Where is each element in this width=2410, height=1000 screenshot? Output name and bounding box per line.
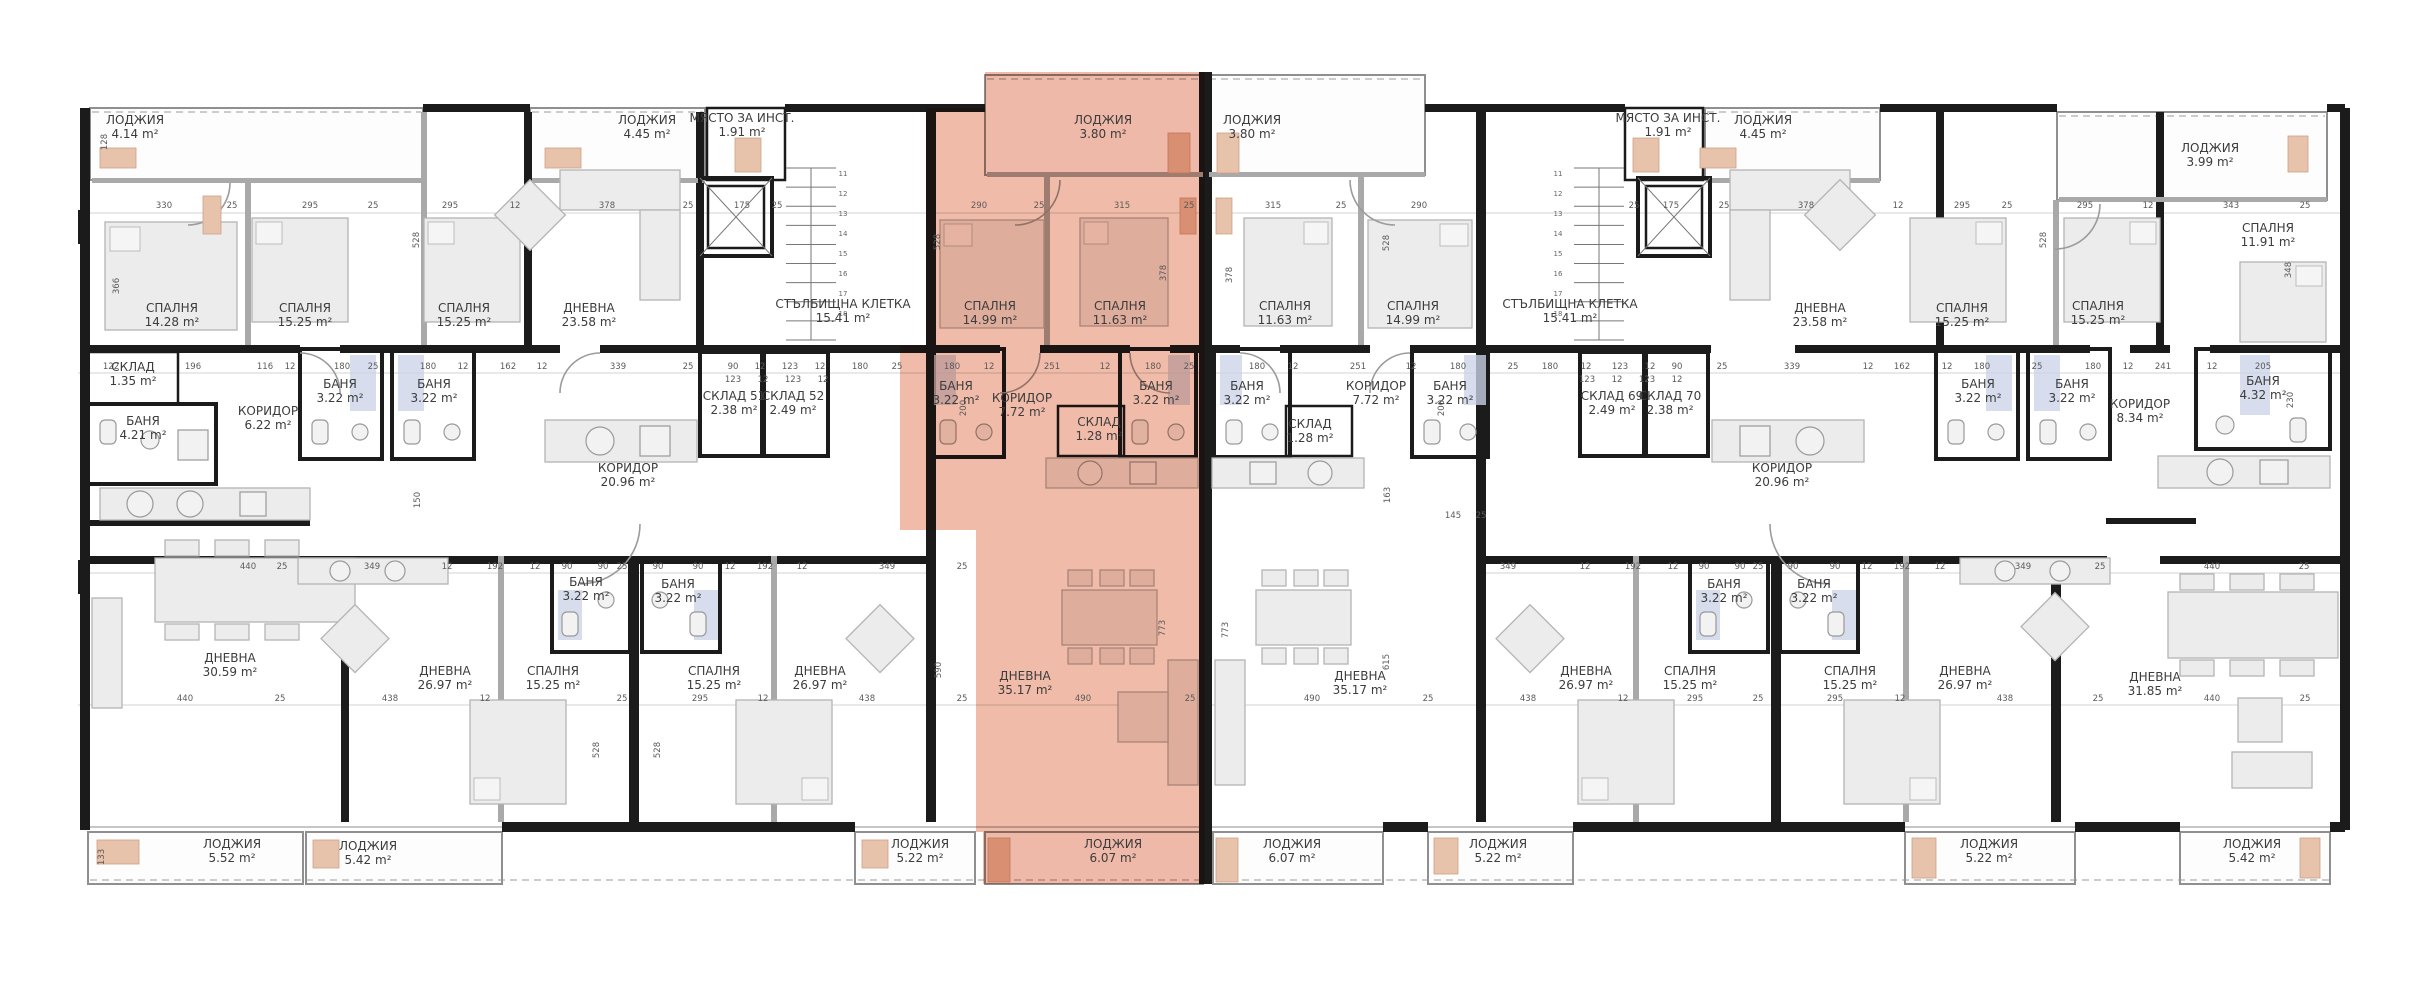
dimension-label: 25 — [1719, 201, 1730, 211]
dimension-label: 192 — [1625, 562, 1641, 572]
dimension-label: 90 — [693, 562, 704, 572]
room-area-label: 20.96 m² — [601, 475, 656, 489]
dimension-label: 440 — [2204, 694, 2220, 704]
dimension-label: 180 — [420, 362, 436, 372]
room-area-label: 30.59 m² — [203, 665, 258, 679]
room-area-label: 1.35 m² — [109, 374, 156, 388]
dimension-label: 180 — [1145, 362, 1161, 372]
floor-plan-canvas: ЛОДЖИЯ4.14 m²ЛОДЖИЯ4.45 m²МЯСТО ЗА ИНСТ.… — [0, 0, 2410, 1000]
room-area-label: 26.97 m² — [418, 678, 473, 692]
dimension-label: 295 — [1954, 201, 1970, 211]
room-label: КОРИДОР — [1752, 461, 1812, 475]
room-label: КОРИДОР — [2110, 397, 2170, 411]
dimension-label: 25 — [772, 201, 783, 211]
dimension-label: 315 — [1114, 201, 1130, 211]
room-label: СПАЛНЯ — [2072, 299, 2124, 313]
room-label: МЯСТО ЗА ИНСТ. — [690, 111, 795, 125]
dimension-label: 25 — [2095, 562, 2106, 572]
room-area-label: 15.25 m² — [1823, 678, 1878, 692]
dimension-label: 200 — [1437, 400, 1447, 416]
dimension-label: 378 — [599, 201, 615, 211]
dimension-label: 343 — [2223, 201, 2239, 211]
room-label: ДНЕВНА — [419, 664, 471, 678]
dimension-label: 25 — [1184, 362, 1195, 372]
room-area-label: 26.97 m² — [793, 678, 848, 692]
room-area-label: 3.22 m² — [1223, 393, 1270, 407]
dimension-label: 615 — [1382, 654, 1392, 670]
dimension-label: 12 — [1862, 562, 1873, 572]
dimension-label: 192 — [1894, 562, 1910, 572]
room-label: СПАЛНЯ — [688, 664, 740, 678]
room-label: СПАЛНЯ — [1259, 299, 1311, 313]
dimension-label: 25 — [1336, 201, 1347, 211]
dimension-label: 12 — [1895, 694, 1906, 704]
room-label: ДНЕВНА — [1939, 664, 1991, 678]
room-label: ЛОДЖИЯ — [1469, 837, 1527, 851]
room-label: СПАЛНЯ — [964, 299, 1016, 313]
stair-step-number: 17 — [839, 290, 848, 298]
room-label: ЛОДЖИЯ — [1223, 113, 1281, 127]
room-label: СКЛАД — [1288, 417, 1332, 431]
room-area-label: 6.22 m² — [244, 418, 291, 432]
room-label: СКЛАД 51 — [703, 389, 766, 403]
dimension-label: 25 — [368, 362, 379, 372]
stair-step-number: 18 — [839, 310, 848, 318]
room-label: ЛОДЖИЯ — [339, 839, 397, 853]
dimension-label: 528 — [933, 234, 943, 250]
room-area-label: 4.21 m² — [119, 428, 166, 442]
dimension-label: 528 — [2039, 232, 2049, 248]
room-area-label: 15.25 m² — [687, 678, 742, 692]
dimension-label: 12 — [725, 562, 736, 572]
room-area-label: 15.25 m² — [2071, 313, 2126, 327]
stair-step-number: 15 — [839, 250, 848, 258]
stair-step-number: 12 — [839, 190, 848, 198]
dimension-label: 315 — [1265, 201, 1281, 211]
room-area-label: 23.58 m² — [1793, 315, 1848, 329]
room-label: ЛОДЖИЯ — [2181, 141, 2239, 155]
room-label: ЛОДЖИЯ — [1074, 113, 1132, 127]
room-label: СПАЛНЯ — [1936, 301, 1988, 315]
dimension-label: 12 — [815, 362, 826, 372]
dimension-label: 528 — [653, 742, 663, 758]
room-area-label: 6.07 m² — [1268, 851, 1315, 865]
room-area-label: 3.80 m² — [1079, 127, 1126, 141]
dimension-label: 196 — [185, 362, 201, 372]
dimension-label: 163 — [1383, 487, 1393, 503]
dimension-label: 12 — [1406, 362, 1417, 372]
stair-step-number: 13 — [839, 210, 848, 218]
dimension-label: 25 — [1753, 694, 1764, 704]
dimension-label: 123 — [1639, 375, 1655, 385]
dimension-label: 192 — [757, 562, 773, 572]
room-label: ЛОДЖИЯ — [891, 837, 949, 851]
dimension-label: 25 — [1508, 362, 1519, 372]
room-label: ЛОДЖИЯ — [1084, 837, 1142, 851]
room-area-label: 3.22 m² — [932, 393, 979, 407]
room-area-label: 3.22 m² — [1790, 591, 1837, 605]
room-area-label: 2.38 m² — [710, 403, 757, 417]
dimension-label: 90 — [728, 362, 739, 372]
room-area-label: 11.63 m² — [1093, 313, 1148, 327]
dimension-label: 192 — [487, 562, 503, 572]
dimension-label: 295 — [2077, 201, 2093, 211]
room-area-label: 35.17 m² — [1333, 683, 1388, 697]
room-area-label: 5.52 m² — [208, 851, 255, 865]
dimension-label: 180 — [1249, 362, 1265, 372]
dimension-label: 295 — [692, 694, 708, 704]
room-label: ДНЕВНА — [2129, 670, 2181, 684]
dimension-label: 122 — [103, 362, 119, 372]
dimension-label: 251 — [1350, 362, 1366, 372]
room-label: КОРИДОР — [238, 404, 298, 418]
dimension-label: 12 — [510, 201, 521, 211]
highlighted-apartment-overlay[interactable] — [900, 72, 1205, 884]
dimension-label: 230 — [2286, 392, 2296, 408]
room-area-label: 4.45 m² — [623, 127, 670, 141]
dimension-label: 12 — [1668, 562, 1679, 572]
dimension-label: 205 — [2255, 362, 2271, 372]
dimension-label: 349 — [1500, 562, 1516, 572]
room-area-label: 2.49 m² — [1588, 403, 1635, 417]
floor-plan: ЛОДЖИЯ4.14 m²ЛОДЖИЯ4.45 m²МЯСТО ЗА ИНСТ.… — [0, 0, 2410, 1000]
dimension-label: 123 — [1579, 375, 1595, 385]
stair-step-number: 13 — [1554, 210, 1563, 218]
dimension-label: 150 — [413, 492, 423, 508]
room-area-label: 3.22 m² — [316, 391, 363, 405]
dimension-label: 90 — [1672, 362, 1683, 372]
room-area-label: 15.25 m² — [526, 678, 581, 692]
dimension-label: 162 — [1894, 362, 1910, 372]
dimension-label: 12 — [1942, 362, 1953, 372]
room-area-label: 14.99 m² — [1386, 313, 1441, 327]
room-area-label: 1.91 m² — [718, 125, 765, 139]
room-area-label: 15.41 m² — [1543, 311, 1598, 325]
dimension-label: 12 — [1100, 362, 1111, 372]
room-label: БАНЯ — [126, 414, 160, 428]
dimension-label: 438 — [859, 694, 875, 704]
dimension-label: 25 — [1423, 694, 1434, 704]
room-label: БАНЯ — [569, 575, 603, 589]
room-label: СПАЛНЯ — [1387, 299, 1439, 313]
dimension-label: 12 — [530, 562, 541, 572]
dimension-label: 90 — [598, 562, 609, 572]
room-area-label: 1.91 m² — [1644, 125, 1691, 139]
room-area-label: 2.49 m² — [769, 403, 816, 417]
room-label: СПАЛНЯ — [1094, 299, 1146, 313]
dimension-label: 290 — [1411, 201, 1427, 211]
room-label: ЛОДЖИЯ — [1734, 113, 1792, 127]
room-label: ЛОДЖИЯ — [618, 113, 676, 127]
room-area-label: 15.25 m² — [1935, 315, 1990, 329]
dimension-label: 12 — [2123, 362, 2134, 372]
furniture-layer — [92, 170, 2338, 804]
room-area-label: 3.80 m² — [1228, 127, 1275, 141]
dimension-label: 12 — [818, 375, 829, 385]
room-area-label: 20.96 m² — [1755, 475, 1810, 489]
dimension-label: 349 — [879, 562, 895, 572]
room-area-label: 15.25 m² — [1663, 678, 1718, 692]
dimension-label: 12 — [758, 375, 769, 385]
dimension-label: 12 — [1863, 362, 1874, 372]
room-label: ДНЕВНА — [1334, 669, 1386, 683]
dimension-label: 241 — [2155, 362, 2171, 372]
dimension-label: 90 — [562, 562, 573, 572]
room-label: БАНЯ — [1707, 577, 1741, 591]
dimension-label: 12 — [1893, 201, 1904, 211]
dimension-label: 12 — [1581, 362, 1592, 372]
room-label: СПАЛНЯ — [438, 301, 490, 315]
dimension-label: 12 — [755, 362, 766, 372]
dimension-label: 128 — [100, 134, 110, 150]
room-label: ЛОДЖИЯ — [1960, 837, 2018, 851]
dimension-label: 25 — [617, 562, 628, 572]
room-label: СПАЛНЯ — [1664, 664, 1716, 678]
dimension-label: 145 — [1445, 511, 1461, 521]
dimension-label: 528 — [1382, 235, 1392, 251]
room-area-label: 3.22 m² — [1132, 393, 1179, 407]
room-area-label: 26.97 m² — [1559, 678, 1614, 692]
room-area-label: 11.63 m² — [1258, 313, 1313, 327]
dimension-label: 339 — [1784, 362, 1800, 372]
room-label: БАНЯ — [2055, 377, 2089, 391]
room-area-label: 26.97 m² — [1938, 678, 1993, 692]
dimension-label: 123 — [782, 362, 798, 372]
dimension-label: 180 — [1450, 362, 1466, 372]
dimension-label: 440 — [177, 694, 193, 704]
dimension-label: 116 — [257, 362, 273, 372]
room-area-label: 4.32 m² — [2239, 388, 2286, 402]
room-label: БАНЯ — [2246, 374, 2280, 388]
dimension-label: 25 — [957, 694, 968, 704]
dimension-label: 123 — [785, 375, 801, 385]
room-area-label: 3.99 m² — [2186, 155, 2233, 169]
dimension-label: 438 — [1997, 694, 2013, 704]
room-area-label: 8.34 m² — [2116, 411, 2163, 425]
room-label: ДНЕВНА — [563, 301, 615, 315]
room-area-label: 3.22 m² — [1700, 591, 1747, 605]
dimension-label: 25 — [2300, 694, 2311, 704]
room-area-label: 11.91 m² — [2241, 235, 2296, 249]
room-area-label: 6.07 m² — [1089, 851, 1136, 865]
room-area-label: 15.25 m² — [278, 315, 333, 329]
dimension-label: 378 — [1225, 267, 1235, 283]
dimension-label: 25 — [683, 201, 694, 211]
dimension-label: 25 — [1034, 201, 1045, 211]
dimension-label: 528 — [412, 232, 422, 248]
dimension-label: 773 — [1221, 622, 1231, 638]
room-label: КОРИДОР — [1346, 379, 1406, 393]
dimension-label: 25 — [2299, 562, 2310, 572]
dimension-label: 25 — [1629, 201, 1640, 211]
dimension-label: 175 — [1663, 201, 1679, 211]
dimension-label: 25 — [683, 362, 694, 372]
dimension-label: 25 — [227, 201, 238, 211]
dimension-label: 180 — [852, 362, 868, 372]
dimension-label: 12 — [537, 362, 548, 372]
dimension-label: 25 — [2093, 694, 2104, 704]
dimension-label: 90 — [653, 562, 664, 572]
room-area-label: 3.22 m² — [1426, 393, 1473, 407]
dimension-label: 590 — [934, 662, 944, 678]
room-area-label: 1.28 m² — [1075, 429, 1122, 443]
dimension-label: 12 — [2207, 362, 2218, 372]
dimension-label: 349 — [364, 562, 380, 572]
room-area-label: 3.22 m² — [410, 391, 457, 405]
room-label: ЛОДЖИЯ — [106, 113, 164, 127]
room-label: ЛОДЖИЯ — [1263, 837, 1321, 851]
dimension-label: 162 — [500, 362, 516, 372]
room-area-label: 4.14 m² — [111, 127, 158, 141]
dimension-label: 438 — [382, 694, 398, 704]
room-area-label: 5.22 m² — [1474, 851, 1521, 865]
room-label: СТЪЛБИЩНА КЛЕТКА — [775, 297, 911, 311]
room-area-label: 2.38 m² — [1646, 403, 1693, 417]
dimension-label: 251 — [1044, 362, 1060, 372]
dimension-label: 90 — [1735, 562, 1746, 572]
room-label: БАНЯ — [417, 377, 451, 391]
room-label: БАНЯ — [1139, 379, 1173, 393]
room-area-label: 23.58 m² — [562, 315, 617, 329]
dimension-label: 175 — [734, 201, 750, 211]
room-area-label: 4.45 m² — [1739, 127, 1786, 141]
dimension-label: 25 — [1185, 694, 1196, 704]
dimension-label: 12 — [442, 562, 453, 572]
dimension-label: 348 — [2284, 262, 2294, 278]
room-area-label: 31.85 m² — [2128, 684, 2183, 698]
dimension-label: 180 — [2085, 362, 2101, 372]
dimension-label: 90 — [1699, 562, 1710, 572]
dimension-label: 12 — [2143, 201, 2154, 211]
dimension-label: 25 — [892, 362, 903, 372]
dimension-label: 25 — [275, 694, 286, 704]
dimension-label: 349 — [2015, 562, 2031, 572]
dimension-label: 330 — [156, 201, 172, 211]
dimension-label: 295 — [442, 201, 458, 211]
room-label: БАНЯ — [1797, 577, 1831, 591]
dimension-label: 25 — [2002, 201, 2013, 211]
dimension-label: 90 — [1830, 562, 1841, 572]
room-label: СКЛАД 70 — [1639, 389, 1702, 403]
dimension-label: 12 — [1612, 375, 1623, 385]
dimension-label: 290 — [971, 201, 987, 211]
room-area-label: 3.22 m² — [654, 591, 701, 605]
room-label: БАНЯ — [939, 379, 973, 393]
room-label: СКЛАД 52 — [762, 389, 825, 403]
room-area-label: 14.99 m² — [963, 313, 1018, 327]
dimension-label: 438 — [1520, 694, 1536, 704]
dimension-label: 200 — [959, 400, 969, 416]
room-label: МЯСТО ЗА ИНСТ. — [1616, 111, 1721, 125]
dimension-label: 12 — [758, 694, 769, 704]
stair-step-number: 14 — [839, 230, 848, 238]
room-label: БАНЯ — [661, 577, 695, 591]
dimension-label: 12 — [1580, 562, 1591, 572]
dimension-label: 12 — [984, 362, 995, 372]
room-label: СКЛАД — [1077, 415, 1121, 429]
dimension-label: 378 — [1798, 201, 1814, 211]
stair-step-number: 12 — [1554, 190, 1563, 198]
room-area-label: 3.22 m² — [562, 589, 609, 603]
room-label: БАНЯ — [323, 377, 357, 391]
room-area-label: 15.25 m² — [437, 315, 492, 329]
dimension-label: 12 — [797, 562, 808, 572]
room-area-label: 5.42 m² — [344, 853, 391, 867]
dimension-label: 25 — [2300, 201, 2311, 211]
stair-step-number: 11 — [1554, 170, 1563, 178]
dimension-label: 295 — [1687, 694, 1703, 704]
room-label: ДНЕВНА — [204, 651, 256, 665]
dimension-label: 339 — [610, 362, 626, 372]
room-label: СПАЛНЯ — [2242, 221, 2294, 235]
dimension-label: 440 — [2204, 562, 2220, 572]
room-label: ДНЕВНА — [1794, 301, 1846, 315]
dimension-label: 25 — [368, 201, 379, 211]
room-area-label: 5.22 m² — [1965, 851, 2012, 865]
dimension-label: 90 — [1788, 562, 1799, 572]
stair-step-number: 16 — [1554, 270, 1563, 278]
dimension-label: 123 — [725, 375, 741, 385]
room-label: СКЛАД 69 — [1581, 389, 1644, 403]
room-area-label: 1.28 m² — [1286, 431, 1333, 445]
room-label: КОРИДОР — [598, 461, 658, 475]
dimension-label: 12 — [1288, 362, 1299, 372]
room-label: ДНЕВНА — [999, 669, 1051, 683]
room-label: ДНЕВНА — [794, 664, 846, 678]
dimension-label: 12 — [1935, 562, 1946, 572]
dimension-label: 180 — [1542, 362, 1558, 372]
dimension-label: 12 — [1618, 694, 1629, 704]
room-label: БАНЯ — [1230, 379, 1264, 393]
dimension-label: 25 — [617, 694, 628, 704]
room-area-label: 35.17 m² — [998, 683, 1053, 697]
room-area-label: 5.42 m² — [2228, 851, 2275, 865]
dimension-label: 25 — [1184, 201, 1195, 211]
dimension-label: 25 — [1753, 562, 1764, 572]
dimension-label: 12 — [1672, 375, 1683, 385]
room-label: КОРИДОР — [992, 391, 1052, 405]
dimension-label: 12 — [285, 362, 296, 372]
stair-step-number: 16 — [839, 270, 848, 278]
room-label: БАНЯ — [1961, 377, 1995, 391]
room-label: СПАЛНЯ — [527, 664, 579, 678]
room-label: ЛОДЖИЯ — [203, 837, 261, 851]
room-area-label: 3.22 m² — [1954, 391, 2001, 405]
dimension-label: 12 — [458, 362, 469, 372]
room-label: ЛОДЖИЯ — [2223, 837, 2281, 851]
room-label: ДНЕВНА — [1560, 664, 1612, 678]
stair-step-number: 15 — [1554, 250, 1563, 258]
dimension-label: 12 — [1645, 362, 1656, 372]
room-label: СПАЛНЯ — [1824, 664, 1876, 678]
dimension-label: 133 — [97, 849, 107, 865]
dimension-label: 295 — [302, 201, 318, 211]
dimension-label: 25 — [957, 562, 968, 572]
dimension-label: 295 — [1827, 694, 1843, 704]
dimension-label: 180 — [1974, 362, 1990, 372]
dimension-label: 12 — [480, 694, 491, 704]
dimension-label: 25 — [1476, 511, 1487, 521]
stair-step-number: 17 — [1554, 290, 1563, 298]
room-label: СПАЛНЯ — [279, 301, 331, 315]
stair-step-number: 11 — [839, 170, 848, 178]
dimension-label: 123 — [1612, 362, 1628, 372]
dimension-label: 440 — [240, 562, 256, 572]
room-area-label: 7.72 m² — [1352, 393, 1399, 407]
dimension-label: 25 — [2032, 362, 2043, 372]
dimension-label: 490 — [1304, 694, 1320, 704]
dimension-label: 378 — [1159, 265, 1169, 281]
